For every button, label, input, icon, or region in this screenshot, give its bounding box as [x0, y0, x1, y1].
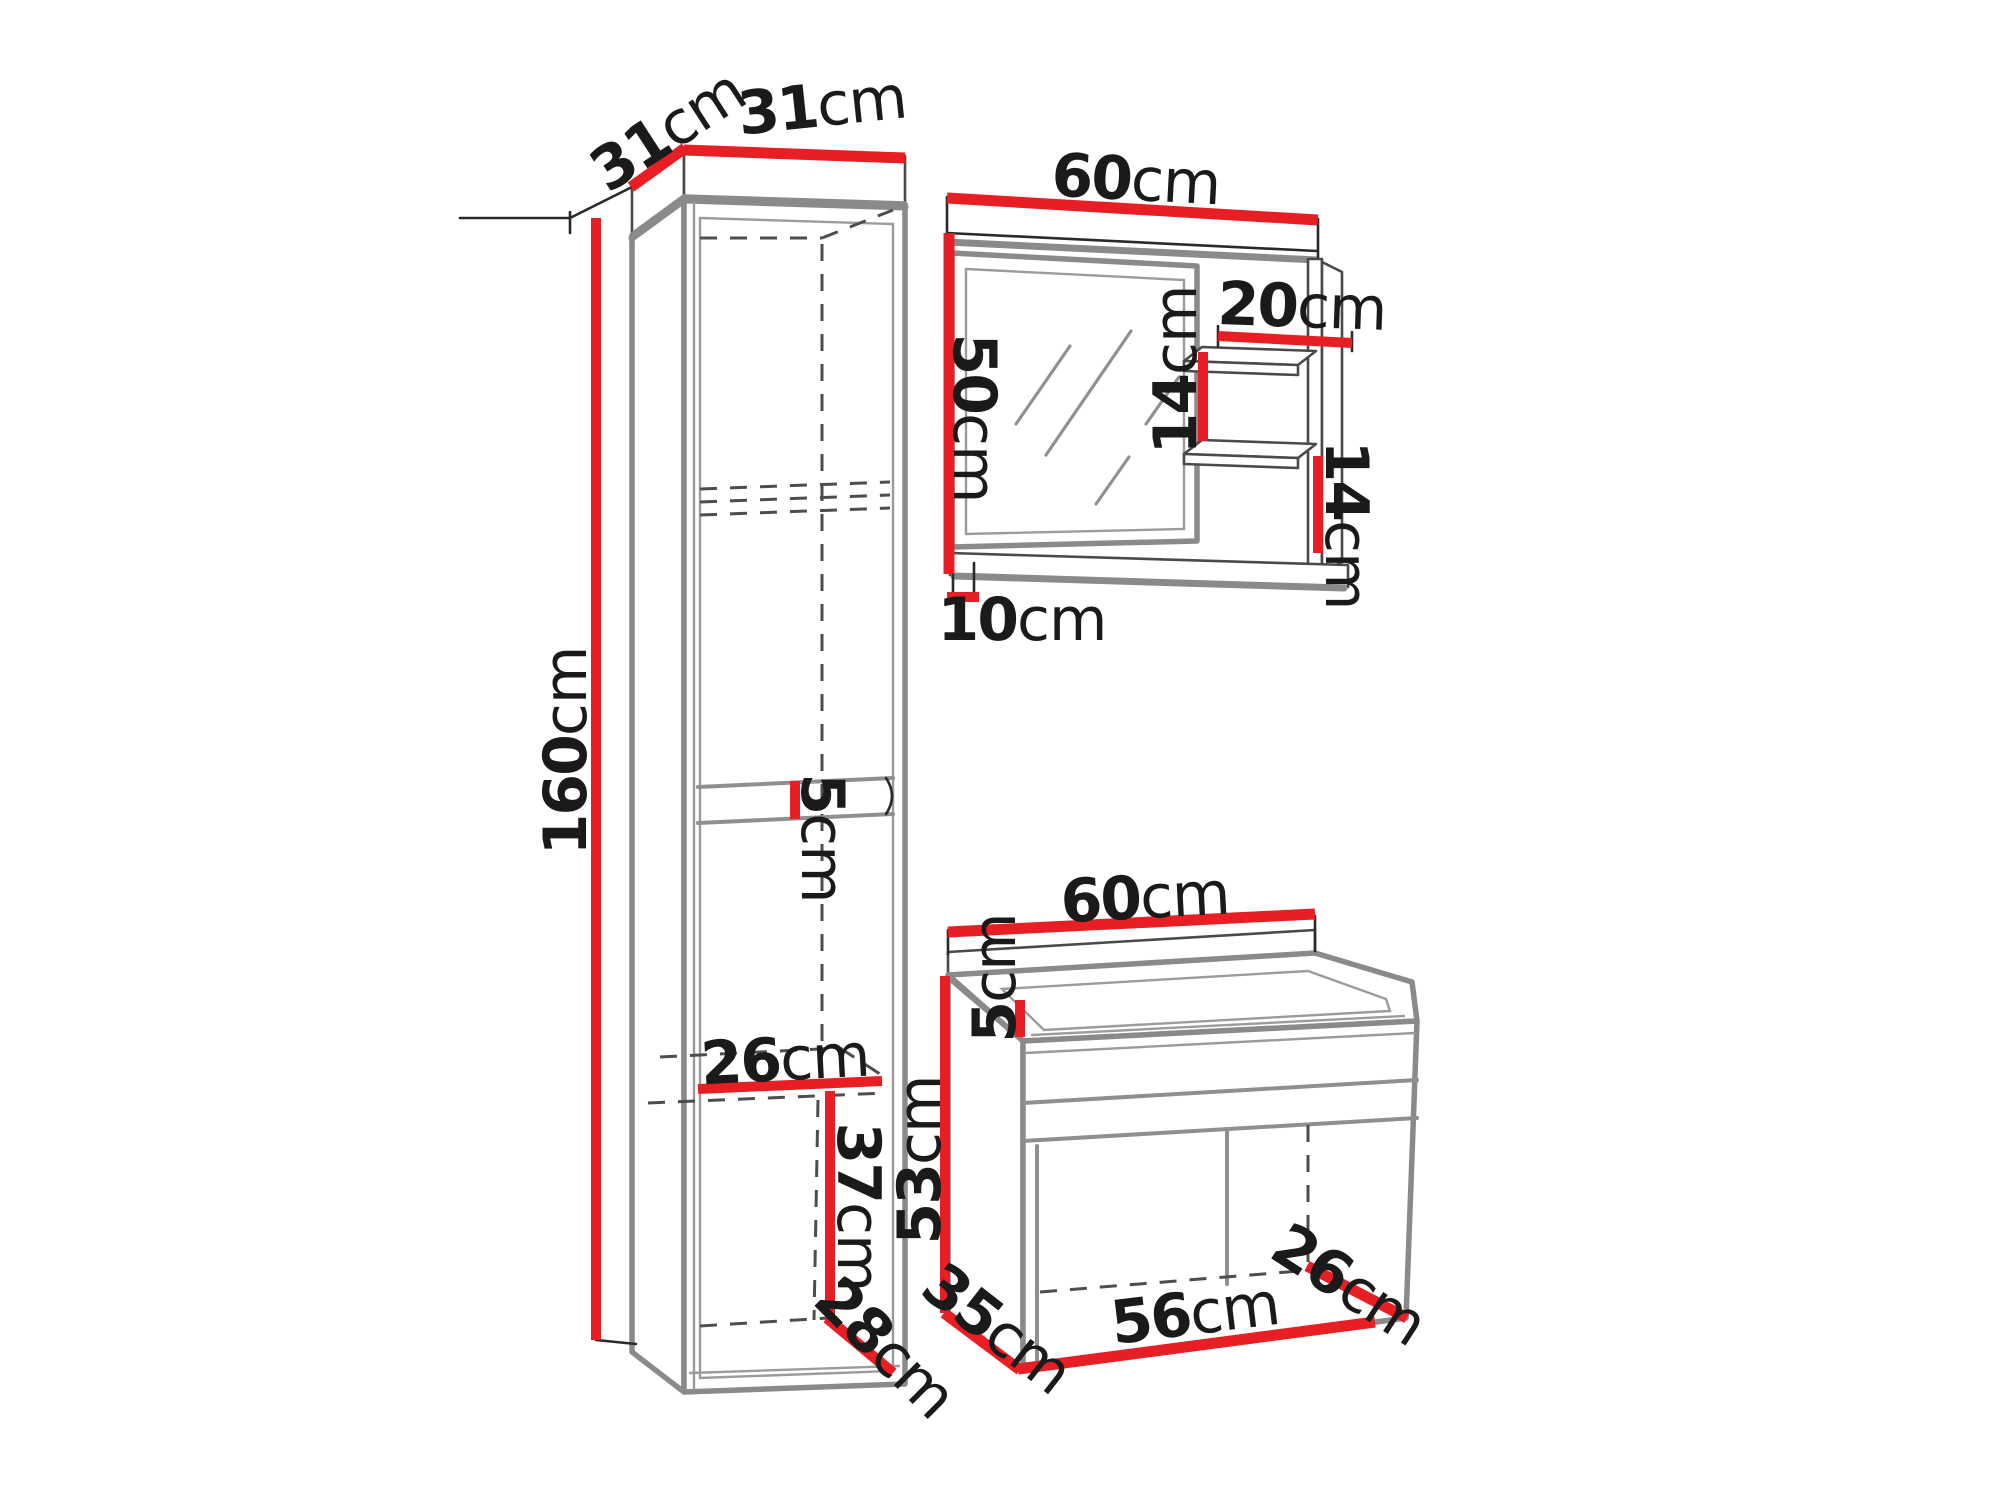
dim-label-mirror-shelf-depth: 10cm — [938, 590, 1107, 650]
cabinet-top-witness-lines — [460, 187, 632, 233]
dim-label-vanity-height: 53cm — [890, 1076, 950, 1245]
dim-label-shelf-spacing: 14cm — [1146, 286, 1206, 455]
furniture-line-art — [0, 0, 2000, 1500]
lower-shelf-front — [1184, 454, 1298, 468]
furniture-dimension-diagram: 31cm 31cm 160cm 5cm 26cm 37cm 28cm 60cm … — [0, 0, 2000, 1500]
dim-label-shelf-side-height: 14cm — [1316, 441, 1376, 610]
dim-label-mirror-width: 60cm — [1050, 146, 1222, 215]
dim-label-cabinet-shelf: 5cm — [792, 773, 852, 902]
dim-label-mirror-height: 50cm — [944, 334, 1004, 503]
dim-label-vanity-splash: 5cm — [965, 913, 1025, 1042]
dim-label-cabinet-lower-height: 37cm — [828, 1123, 888, 1292]
dim-label-cabinet-height: 160cm — [536, 647, 596, 856]
dim-label-cabinet-inner-width: 26cm — [699, 1026, 871, 1095]
dim-label-cabinet-width: 31cm — [735, 67, 909, 144]
dim-label-vanity-width: 60cm — [1059, 864, 1231, 933]
dim-label-shelf-width: 20cm — [1217, 274, 1388, 340]
cabinet-side-panel — [632, 197, 684, 1392]
